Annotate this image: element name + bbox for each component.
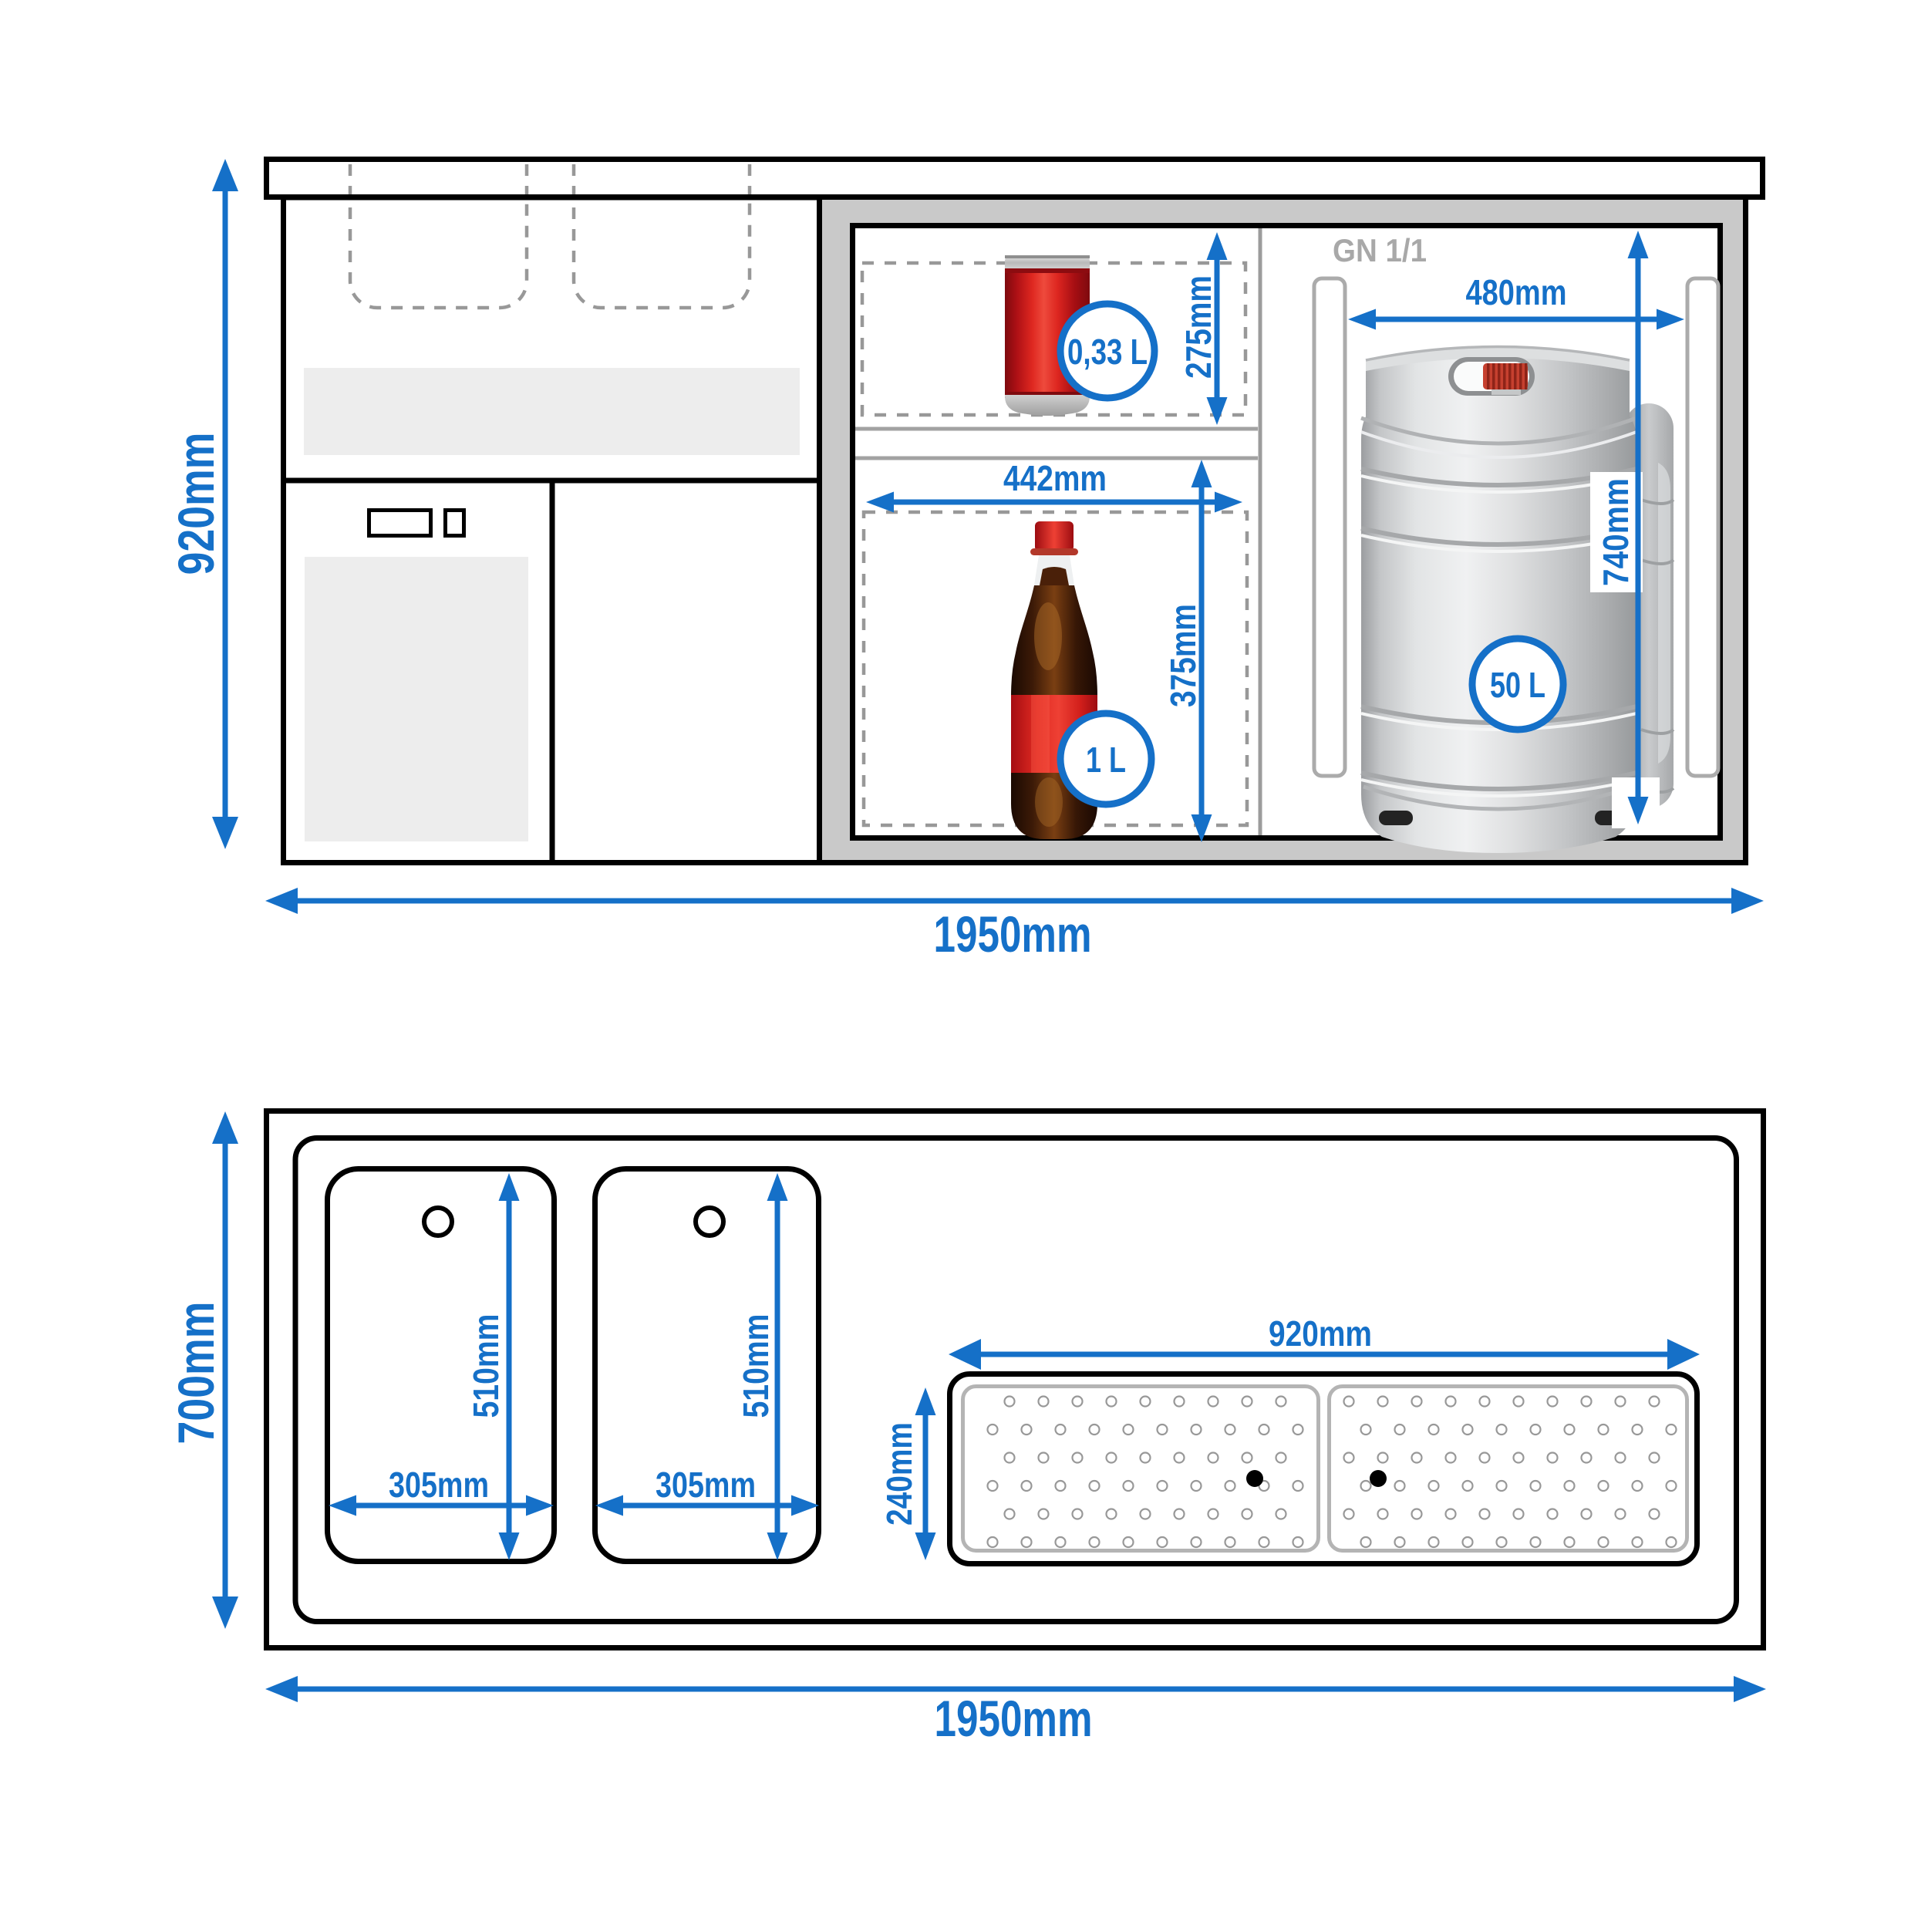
svg-text:480mm: 480mm [1466, 272, 1567, 312]
svg-text:1950mm: 1950mm [934, 905, 1092, 963]
svg-text:920mm: 920mm [167, 433, 224, 575]
svg-text:0,33 L: 0,33 L [1067, 332, 1148, 372]
svg-text:1950mm: 1950mm [935, 1690, 1093, 1747]
svg-text:510mm: 510mm [736, 1314, 776, 1418]
svg-text:50 L: 50 L [1490, 665, 1545, 705]
svg-text:305mm: 305mm [656, 1465, 756, 1505]
svg-text:700mm: 700mm [167, 1302, 224, 1445]
svg-text:510mm: 510mm [466, 1314, 506, 1418]
svg-text:375mm: 375mm [1163, 604, 1203, 707]
svg-text:920mm: 920mm [1269, 1313, 1372, 1354]
svg-text:305mm: 305mm [389, 1465, 489, 1505]
svg-text:740mm: 740mm [1596, 478, 1636, 586]
svg-text:275mm: 275mm [1178, 275, 1218, 379]
svg-text:240mm: 240mm [879, 1422, 919, 1526]
svg-text:GN 1/1: GN 1/1 [1333, 232, 1427, 268]
svg-text:1 L: 1 L [1086, 740, 1126, 780]
svg-text:442mm: 442mm [1003, 458, 1107, 498]
